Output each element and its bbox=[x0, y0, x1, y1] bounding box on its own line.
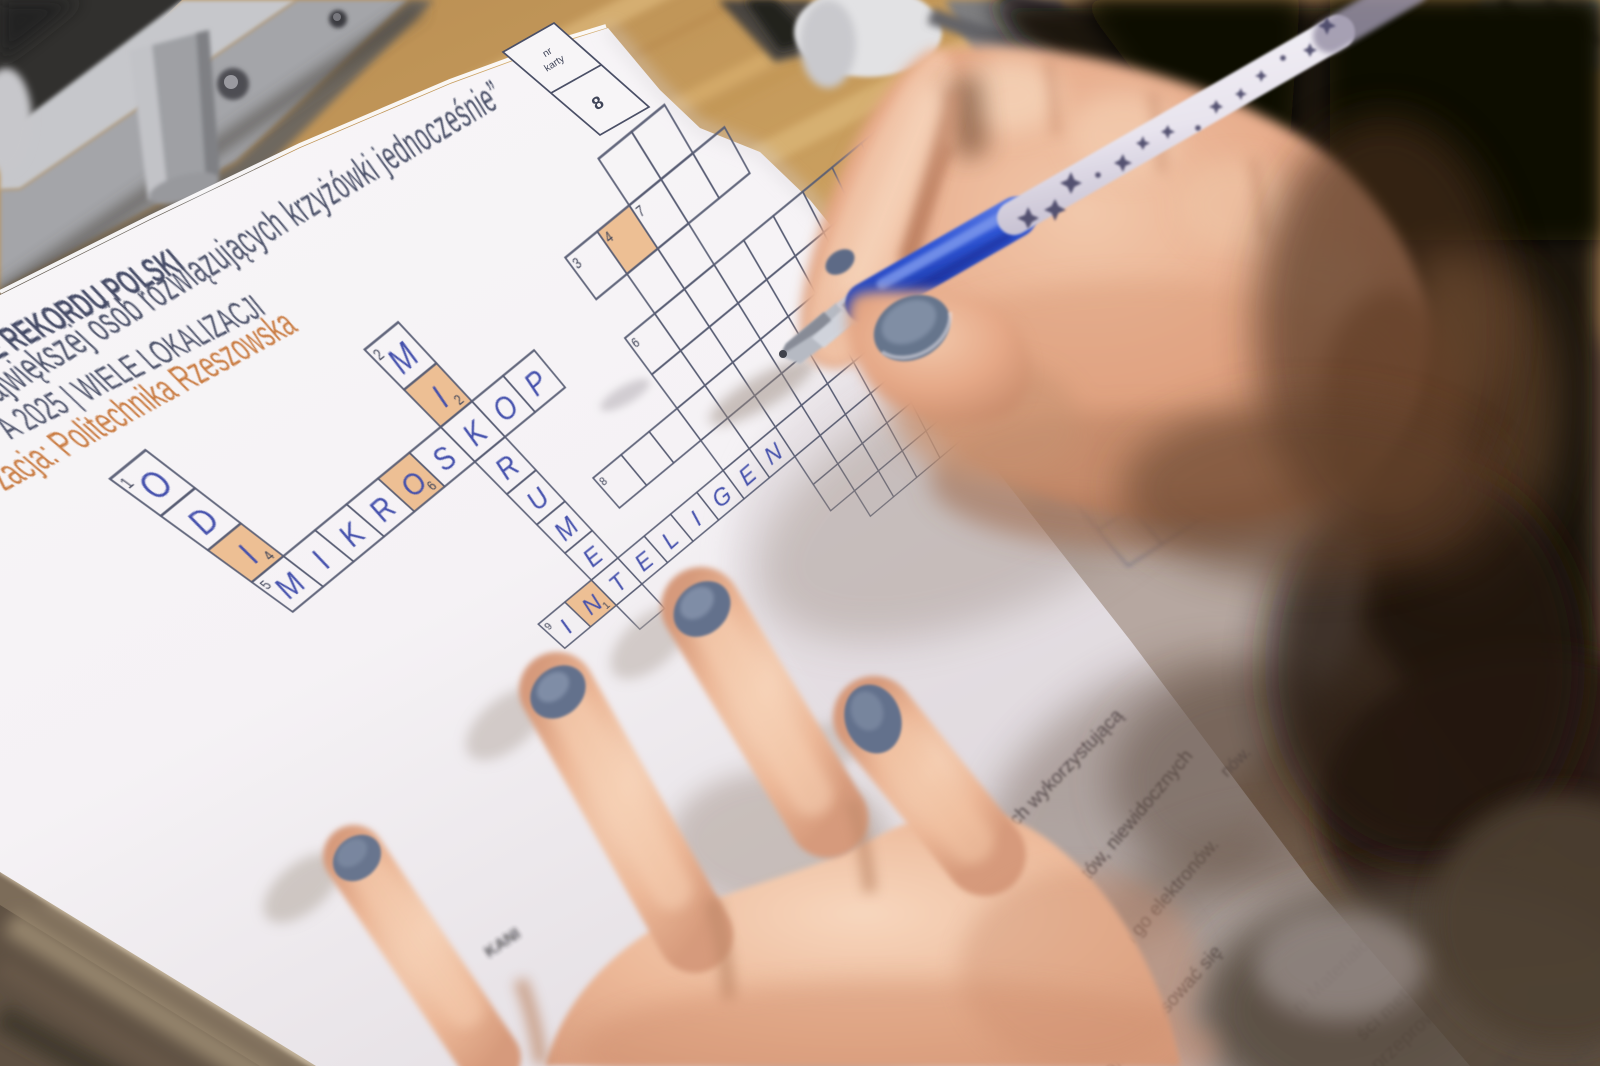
svg-text:KANI: KANI bbox=[482, 925, 524, 961]
